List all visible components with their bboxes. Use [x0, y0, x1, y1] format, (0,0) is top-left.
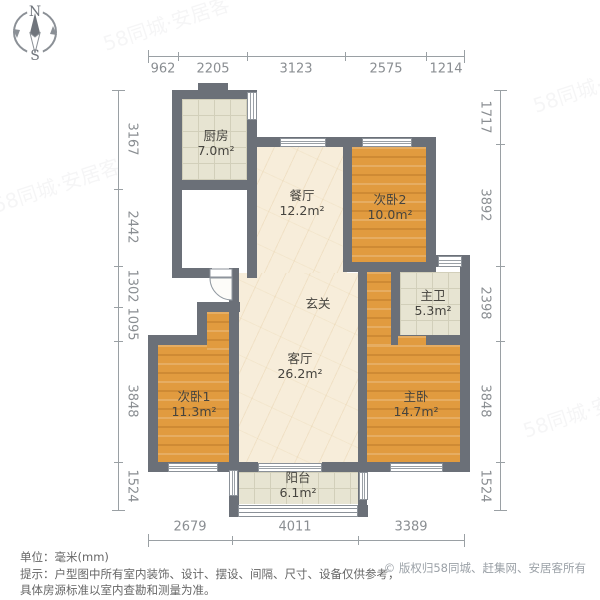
room-label-kitchen: 厨房7.0m² — [197, 128, 234, 158]
wall — [358, 505, 368, 517]
dim-line-bottom — [148, 540, 465, 541]
window — [247, 92, 257, 120]
dim-label: 1095 — [125, 307, 140, 340]
dim-label: 2575 — [369, 62, 402, 77]
compass-north-label: N — [29, 4, 41, 20]
compass-icon: N S — [5, 2, 63, 62]
dim-label: 1214 — [429, 62, 462, 77]
wall — [391, 262, 400, 345]
room-label-masterbath: 主卫5.3m² — [414, 288, 451, 318]
dim-label: 2442 — [125, 210, 140, 243]
wall — [229, 505, 238, 517]
footer-tip-line1: 提示：户型图中所有室内装饰、设计、摆设、间隔、尺寸、设备仅供参考， — [20, 567, 400, 582]
entry-door-icon — [205, 265, 241, 307]
wall — [172, 90, 257, 99]
window — [168, 463, 218, 472]
dim-label: 3848 — [478, 384, 493, 417]
footer-unit-note: 单位：毫米(mm) — [20, 550, 109, 565]
dim-label: 1302 — [125, 269, 140, 302]
dim-label: 2398 — [478, 286, 493, 319]
watermark: 58同城·安居客 — [99, 0, 233, 57]
dim-label: 962 — [151, 62, 176, 77]
window — [390, 463, 443, 472]
masterbath-door-opening — [398, 336, 426, 345]
dim-label: 3389 — [394, 520, 427, 535]
wall — [460, 255, 470, 472]
window — [438, 256, 462, 267]
dim-line-top — [148, 56, 465, 57]
window — [362, 138, 412, 147]
balcony-window — [238, 505, 358, 517]
wall — [426, 137, 436, 265]
wall — [343, 262, 436, 272]
room-label-master: 主卧14.7m² — [393, 389, 438, 419]
wall — [148, 335, 158, 472]
room-label-dining: 餐厅12.2m² — [279, 188, 324, 218]
dim-label: 2205 — [196, 62, 229, 77]
window — [229, 470, 238, 496]
room-master-alcove-floor — [367, 272, 391, 345]
dim-label: 2679 — [173, 520, 206, 535]
bedroom1-door-opening — [207, 312, 229, 352]
room-label-bedroom1: 次卧111.3m² — [171, 389, 216, 419]
watermark: 58同城·安居客 — [0, 150, 123, 218]
room-label-bedroom2: 次卧210.0m² — [367, 192, 412, 222]
compass-south-label: S — [30, 48, 40, 62]
dim-label: 3123 — [279, 62, 312, 77]
dim-line-left — [118, 90, 119, 510]
wall — [172, 180, 257, 190]
room-label-living: 客厅26.2m² — [277, 351, 322, 381]
room-label-balcony: 阳台6.1m² — [279, 470, 316, 500]
wall — [322, 462, 358, 472]
dim-label: 4011 — [278, 520, 311, 535]
dim-label: 3892 — [478, 188, 493, 221]
wall — [343, 137, 352, 270]
footer-tip-line2: 具体房源标准以室内查勘和测量为准。 — [20, 583, 216, 598]
window — [280, 138, 326, 147]
watermark: 58同城·安居客 — [519, 375, 600, 443]
dim-label: 1717 — [478, 100, 493, 133]
dim-label: 3848 — [125, 384, 140, 417]
floorplan-canvas: 58同城·安居客 58同城·安居客 58同城·安居客 58同城·安居客 N S — [0, 0, 600, 600]
dim-label: 1524 — [125, 469, 140, 502]
copyright-notice: © 版权归58同城、赶集网、安居客所有 — [384, 560, 586, 576]
dim-label: 1524 — [478, 469, 493, 502]
watermark: 58同城·安居客 — [529, 50, 600, 118]
dim-label: 3167 — [125, 122, 140, 155]
window — [359, 472, 368, 500]
room-label-hallway: 玄关 — [305, 296, 330, 311]
dim-line-right — [500, 90, 501, 510]
